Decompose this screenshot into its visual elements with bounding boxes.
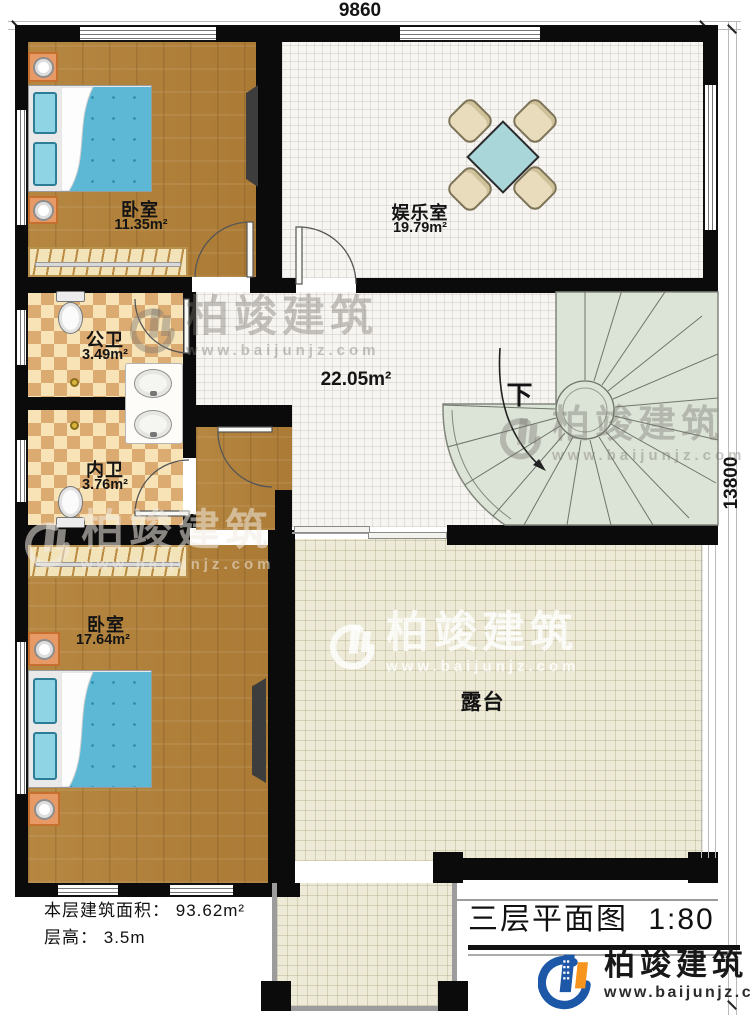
nightstand-icon (28, 52, 58, 82)
pillow-icon (33, 732, 57, 780)
window (400, 25, 540, 42)
sliding-door-panel (294, 526, 370, 533)
sink-icon (134, 369, 172, 398)
window (15, 110, 28, 225)
toilet-icon (56, 517, 85, 528)
dimension-top-label: 9860 (300, 0, 420, 22)
tv-icon (252, 678, 266, 783)
wall (447, 525, 718, 545)
stairs-down-label: 下 (503, 375, 537, 412)
room-area-private-bath: 3.76m² (55, 477, 155, 493)
wall (268, 530, 295, 885)
brand-name: 柏竣建筑 (604, 948, 750, 982)
window (58, 883, 118, 897)
window (703, 85, 718, 230)
brand-logo-icon (538, 948, 594, 1010)
wall (433, 858, 718, 880)
window (15, 310, 28, 365)
floorplan-canvas: 9860 13800 (0, 0, 750, 1024)
sink-icon (134, 410, 172, 439)
room-area-bedroom2: 17.64m² (53, 632, 153, 648)
brand-website: www.baijunjz.com (604, 984, 750, 1002)
pillar (433, 852, 463, 883)
bed-sheet-icon (61, 87, 103, 191)
wardrobe-icon (28, 545, 188, 578)
wall (196, 405, 292, 427)
floor-info: 本层建筑面积： 93.62m² 层高： 3.5m (44, 897, 245, 951)
wall (703, 42, 718, 85)
window (705, 390, 718, 515)
nightstand-icon (28, 792, 60, 826)
dimension-line-right2 (736, 21, 737, 1015)
bed-icon (28, 670, 152, 788)
wall (282, 278, 296, 293)
wall (540, 25, 718, 42)
plan-title: 三层平面图 1:80 (468, 894, 740, 938)
pillow-icon (33, 142, 57, 186)
pillar (261, 981, 291, 1011)
plan-scale: 1:80 (648, 903, 714, 936)
wall (275, 490, 292, 530)
pillar (438, 981, 468, 1011)
wall (15, 42, 28, 110)
wall (15, 25, 80, 42)
wall (356, 278, 718, 293)
tv-icon (246, 85, 258, 187)
terrace-extension-floor (277, 883, 452, 1006)
floor-area-label: 本层建筑面积： (44, 901, 170, 920)
plan-title-text: 三层平面图 (468, 903, 628, 936)
railing (272, 1006, 457, 1011)
wall (15, 502, 28, 642)
wardrobe-icon (28, 247, 188, 277)
pillow-icon (33, 678, 57, 724)
floor-height-value: 3.5m (104, 928, 146, 947)
window (170, 883, 233, 897)
dimension-line-right (728, 21, 729, 1015)
room-area-public-bath: 3.49m² (55, 347, 155, 363)
room-area-bedroom1: 11.35m² (91, 217, 191, 233)
wall (15, 794, 28, 895)
wall (703, 230, 718, 390)
wall (250, 277, 282, 293)
floor-area-line: 本层建筑面积： 93.62m² (44, 897, 245, 924)
dimension-right-label: 13800 (721, 453, 743, 513)
wall (256, 42, 282, 277)
towel-hook-icon (70, 378, 79, 387)
wall (15, 525, 190, 545)
wall (233, 883, 300, 897)
wall (216, 25, 400, 42)
room-area-entertainment: 19.79m² (370, 220, 470, 236)
window (80, 25, 216, 42)
nightstand-icon (28, 196, 58, 224)
wall (15, 883, 58, 897)
bed-icon (28, 85, 152, 192)
window (15, 440, 28, 502)
wall (183, 292, 196, 458)
room-label-terrace: 露台 (430, 686, 535, 716)
floor-height-label: 层高： (44, 928, 98, 947)
room-area-hall: 22.05m² (306, 369, 406, 391)
bed-sheet-icon (61, 672, 103, 787)
terrace-railing (701, 545, 717, 858)
wall (15, 277, 192, 293)
floor-height-line: 层高： 3.5m (44, 924, 245, 951)
window (15, 642, 28, 794)
brand-logo: 柏竣建筑 www.baijunjz.com (538, 948, 750, 1010)
floor-area-value: 93.62m² (176, 901, 245, 920)
wall (15, 397, 125, 410)
wall (15, 225, 28, 310)
towel-hook-icon (70, 421, 79, 430)
pillow-icon (33, 92, 57, 134)
toilet-icon (56, 291, 85, 302)
sliding-door-panel (368, 532, 447, 539)
wall (118, 883, 170, 897)
